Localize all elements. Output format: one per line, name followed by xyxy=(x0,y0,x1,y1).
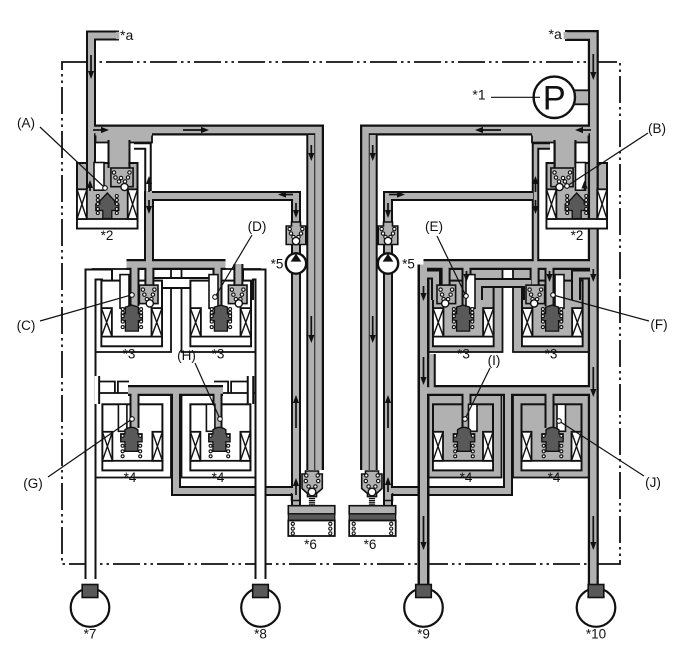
svg-text:(I): (I) xyxy=(488,353,501,368)
svg-text:(B): (B) xyxy=(648,121,666,136)
svg-text:*5: *5 xyxy=(271,257,284,272)
svg-text:*a: *a xyxy=(120,27,133,43)
svg-text:(E): (E) xyxy=(425,219,443,234)
svg-text:*3: *3 xyxy=(457,347,470,362)
svg-text:*4: *4 xyxy=(212,470,225,485)
svg-text:*3: *3 xyxy=(212,347,225,362)
svg-text:*8: *8 xyxy=(254,627,267,642)
svg-text:*1: *1 xyxy=(472,87,485,103)
svg-text:*6: *6 xyxy=(364,537,377,552)
svg-text:*4: *4 xyxy=(124,470,137,485)
svg-text:(C): (C) xyxy=(17,318,36,333)
svg-text:(H): (H) xyxy=(177,348,196,363)
svg-text:*2: *2 xyxy=(101,228,114,243)
svg-text:*9: *9 xyxy=(417,627,430,642)
svg-text:*4: *4 xyxy=(460,470,473,485)
svg-text:(D): (D) xyxy=(248,219,267,234)
svg-text:(F): (F) xyxy=(650,317,667,332)
svg-text:*5: *5 xyxy=(402,257,415,272)
svg-text:*10: *10 xyxy=(586,627,606,642)
svg-text:*4: *4 xyxy=(548,470,561,485)
svg-text:*3: *3 xyxy=(545,347,558,362)
svg-text:*6: *6 xyxy=(304,537,317,552)
svg-text:(G): (G) xyxy=(23,476,43,491)
svg-text:P: P xyxy=(543,80,566,118)
svg-text:*2: *2 xyxy=(571,228,584,243)
svg-text:*3: *3 xyxy=(123,347,136,362)
svg-text:*a: *a xyxy=(549,26,562,42)
svg-text:(J): (J) xyxy=(645,475,661,490)
svg-text:*7: *7 xyxy=(84,627,97,642)
svg-text:(A): (A) xyxy=(17,116,35,131)
